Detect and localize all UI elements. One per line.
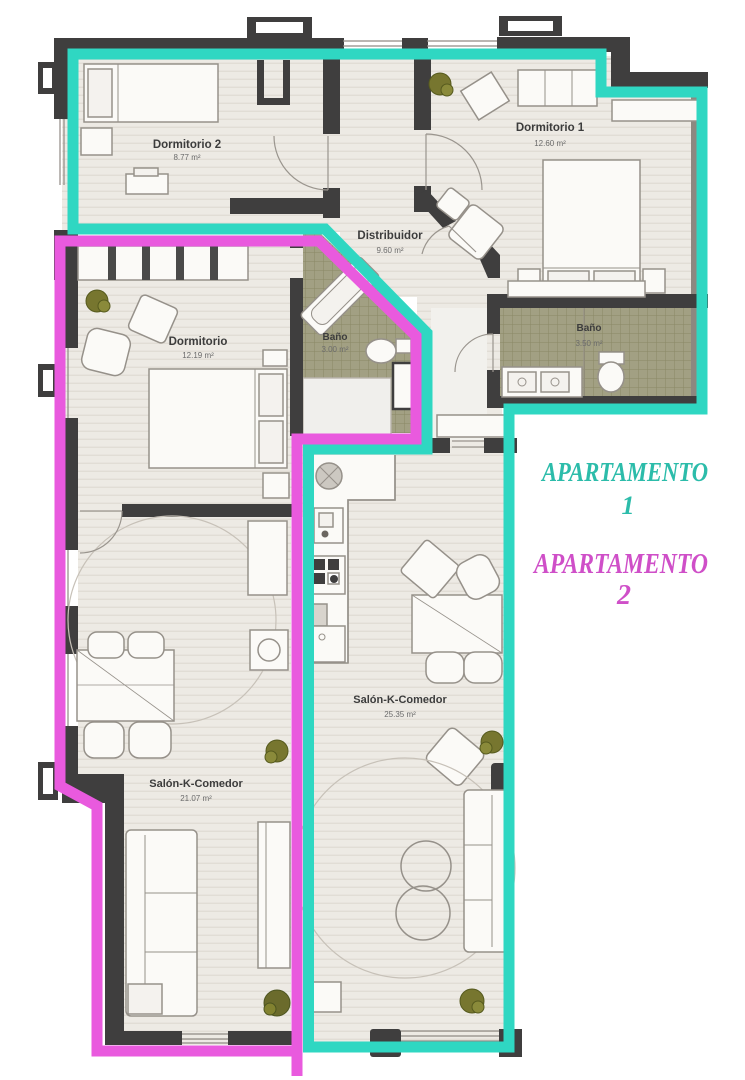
svg-text:12.19 m²: 12.19 m² — [182, 351, 214, 360]
svg-text:1: 1 — [622, 491, 635, 520]
svg-text:3.50 m²: 3.50 m² — [575, 339, 602, 348]
svg-text:APARTAMENTO: APARTAMENTO — [532, 548, 708, 580]
svg-text:APARTAMENTO: APARTAMENTO — [540, 457, 708, 487]
svg-text:Dormitorio 1: Dormitorio 1 — [516, 122, 585, 134]
svg-text:25.35 m²: 25.35 m² — [384, 710, 416, 719]
svg-text:8.77 m²: 8.77 m² — [173, 153, 200, 162]
svg-text:Dormitorio 2: Dormitorio 2 — [153, 139, 221, 151]
svg-text:Baño: Baño — [577, 323, 602, 334]
svg-text:2: 2 — [616, 580, 631, 611]
svg-text:Salón-K-Comedor: Salón-K-Comedor — [149, 778, 243, 790]
svg-text:Dormitorio: Dormitorio — [169, 336, 228, 348]
svg-text:Baño: Baño — [323, 332, 348, 343]
svg-text:Salón-K-Comedor: Salón-K-Comedor — [353, 694, 447, 706]
svg-text:Distribuidor: Distribuidor — [357, 230, 423, 242]
svg-text:12.60 m²: 12.60 m² — [534, 139, 566, 148]
svg-text:3.00 m²: 3.00 m² — [321, 345, 348, 354]
svg-text:21.07 m²: 21.07 m² — [180, 794, 212, 803]
svg-text:9.60 m²: 9.60 m² — [376, 246, 403, 255]
